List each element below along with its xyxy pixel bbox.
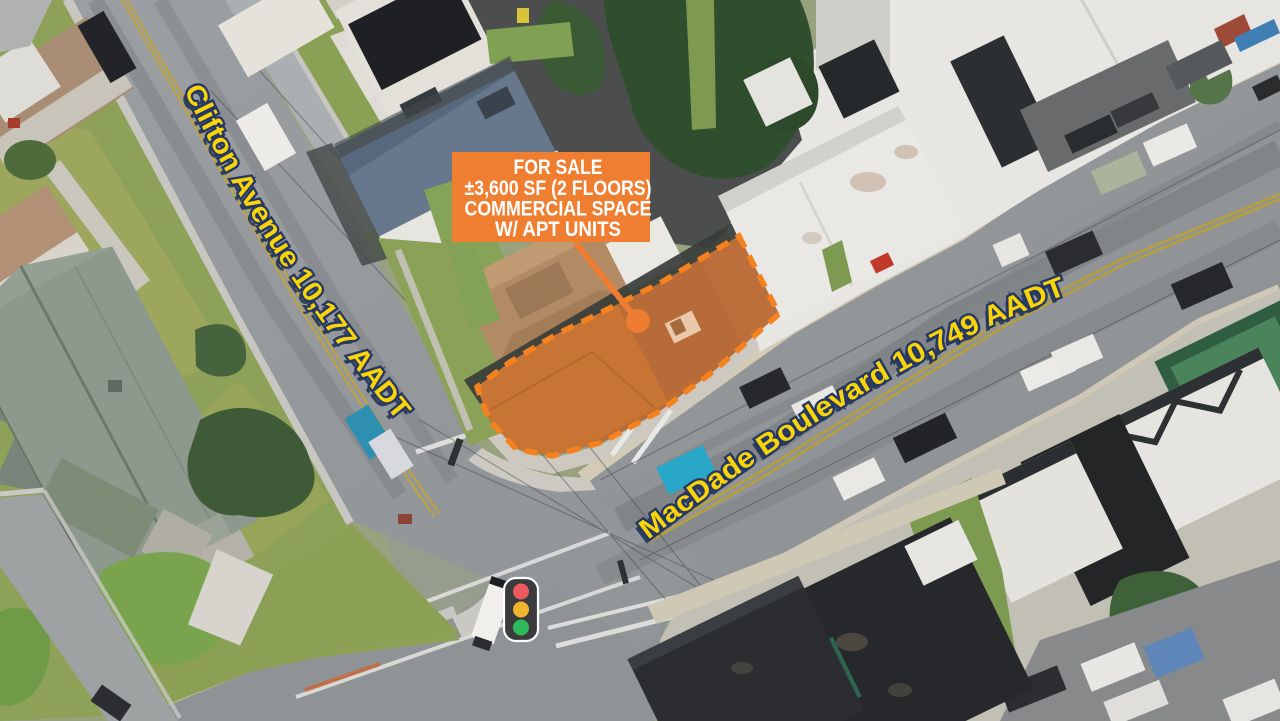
svg-text:W/ APT UNITS: W/ APT UNITS (495, 218, 621, 241)
svg-text:FOR SALE: FOR SALE (514, 156, 603, 179)
